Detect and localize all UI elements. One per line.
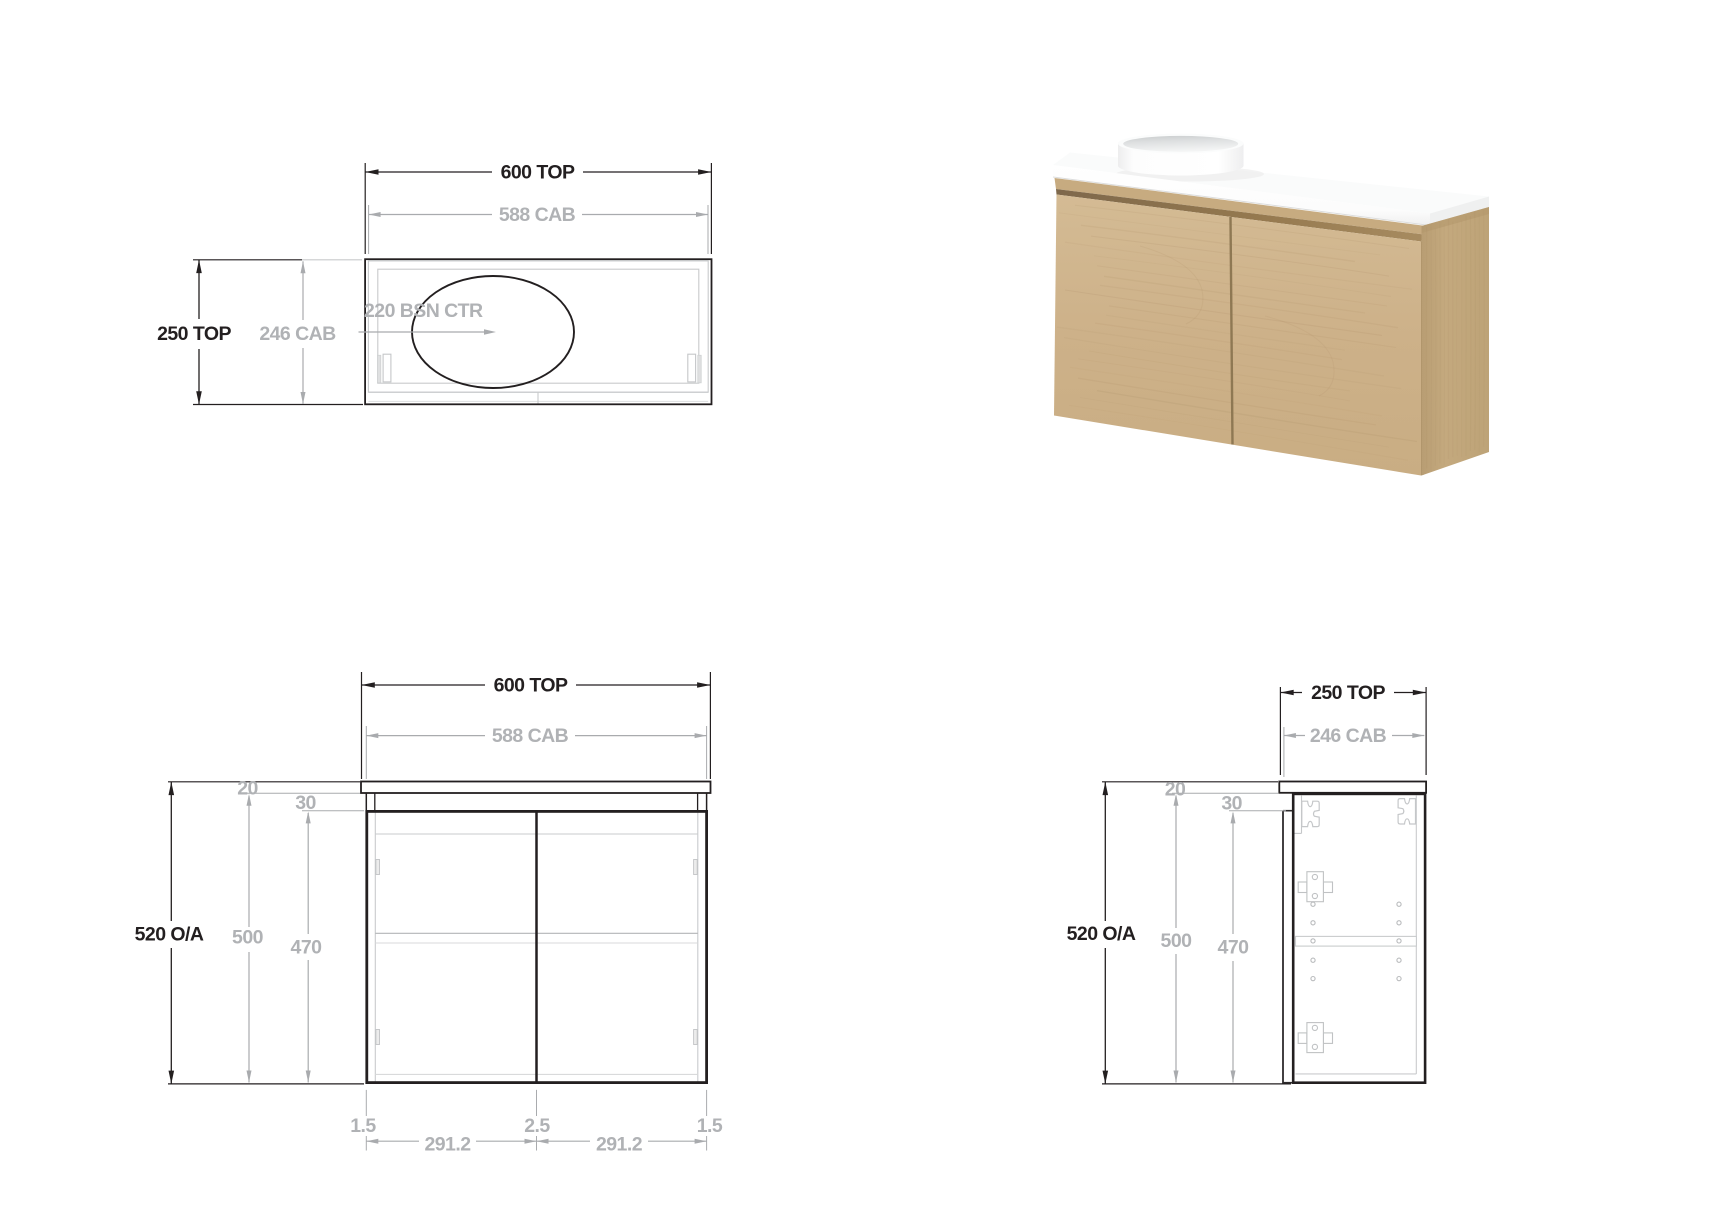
svg-text:20: 20 xyxy=(237,778,258,800)
svg-text:600 TOP: 600 TOP xyxy=(501,162,575,184)
svg-text:246 CAB: 246 CAB xyxy=(259,323,336,345)
svg-text:470: 470 xyxy=(1218,937,1250,959)
svg-text:291.2: 291.2 xyxy=(596,1134,643,1156)
svg-text:588 CAB: 588 CAB xyxy=(492,725,569,747)
svg-text:500: 500 xyxy=(232,927,264,949)
svg-text:250 TOP: 250 TOP xyxy=(157,323,231,345)
svg-text:291.2: 291.2 xyxy=(424,1134,471,1156)
svg-text:30: 30 xyxy=(1221,793,1242,815)
svg-text:588 CAB: 588 CAB xyxy=(499,204,576,226)
svg-text:1.5: 1.5 xyxy=(350,1115,376,1137)
svg-text:1.5: 1.5 xyxy=(697,1115,723,1137)
svg-text:2.5: 2.5 xyxy=(524,1115,550,1137)
svg-text:250 TOP: 250 TOP xyxy=(1311,682,1385,704)
svg-text:30: 30 xyxy=(295,792,316,814)
svg-text:520 O/A: 520 O/A xyxy=(135,924,204,946)
svg-text:500: 500 xyxy=(1161,930,1193,952)
svg-text:600 TOP: 600 TOP xyxy=(494,675,568,697)
svg-text:220 BSN CTR: 220 BSN CTR xyxy=(364,300,483,322)
svg-text:520 O/A: 520 O/A xyxy=(1067,923,1136,945)
svg-text:470: 470 xyxy=(291,937,323,959)
svg-text:246 CAB: 246 CAB xyxy=(1310,725,1387,747)
svg-text:20: 20 xyxy=(1165,778,1186,800)
